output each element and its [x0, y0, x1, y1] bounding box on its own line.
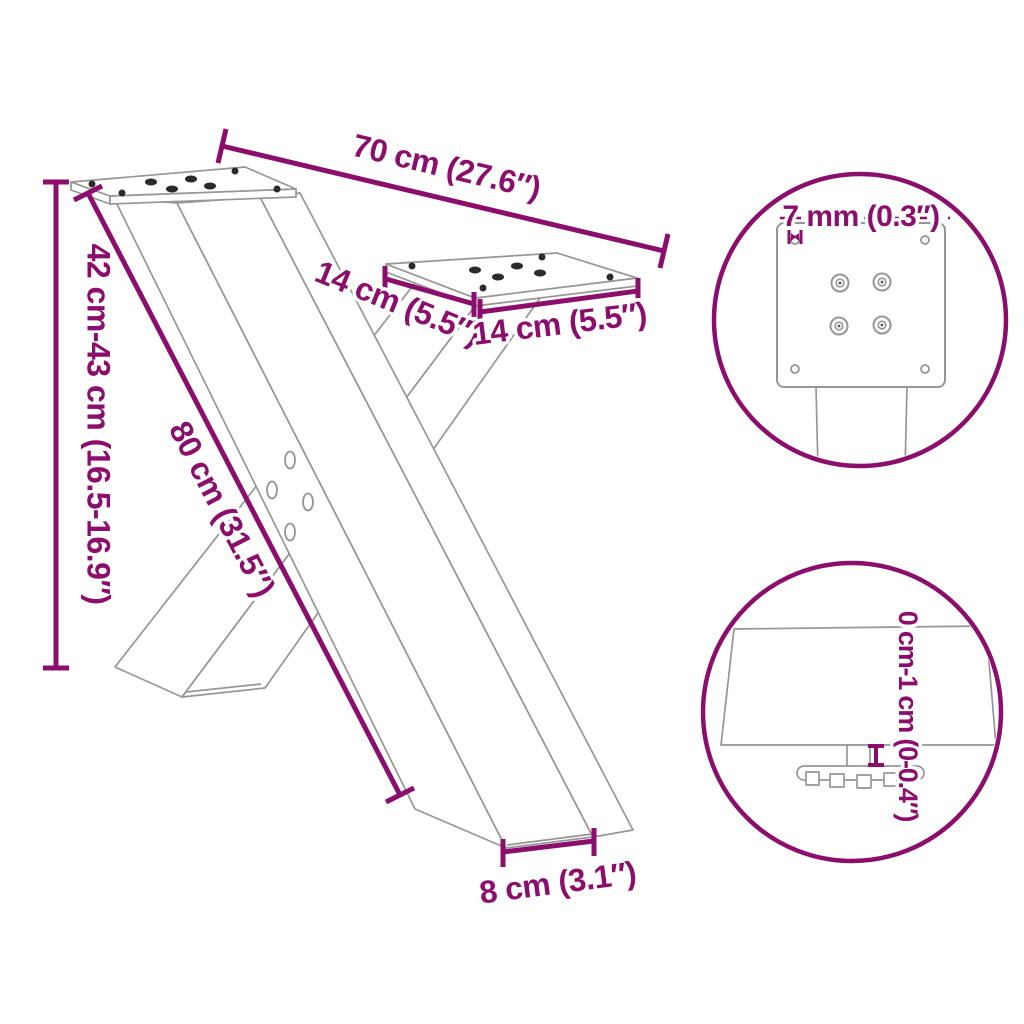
- mounting-plate-left: [71, 167, 296, 204]
- product-dimension-diagram: 70 cm (27.6″) 42 cm-43 cm (16.5-16.9″) 8…: [0, 0, 1024, 1024]
- height-label: 42 cm-43 cm (16.5-16.9″): [81, 244, 117, 605]
- leveler-range-label: 0 cm-1 cm (0-0.4″): [893, 611, 923, 822]
- top-width-label: 70 cm (27.6″): [349, 127, 544, 206]
- detail-circle-foot: 0 cm-1 cm (0-0.4″): [703, 563, 1001, 861]
- dimension-height: 42 cm-43 cm (16.5-16.9″): [43, 182, 117, 668]
- x-table-leg-drawing: 70 cm (27.6″) 42 cm-43 cm (16.5-16.9″) 8…: [0, 0, 1024, 1024]
- detail-circle-plate: 7 mm (0.3″): [714, 174, 1006, 471]
- plate-thickness-label: 7 mm (0.3″): [782, 200, 939, 233]
